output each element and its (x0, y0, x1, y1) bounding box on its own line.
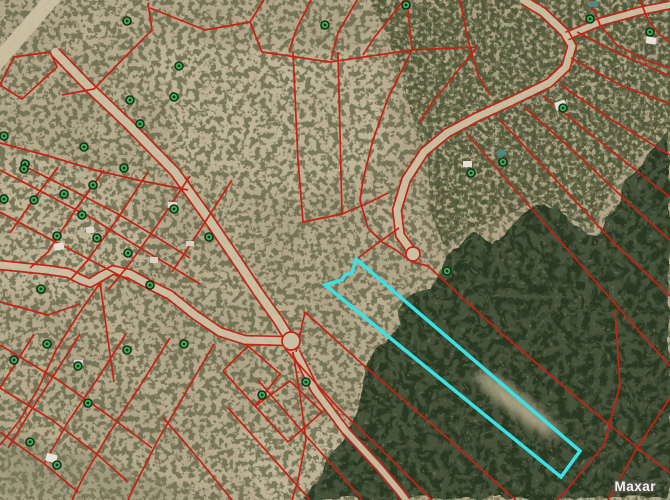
parcel-marker[interactable] (0, 195, 8, 203)
parcel-marker[interactable] (74, 362, 82, 370)
parcel-marker[interactable] (80, 143, 88, 151)
marker-dot-icon (123, 167, 126, 170)
parcel-marker[interactable] (10, 356, 18, 364)
parcel-marker[interactable] (205, 233, 213, 241)
marker-dot-icon (562, 107, 565, 110)
marker-dot-icon (173, 208, 176, 211)
parcel-marker[interactable] (170, 205, 178, 213)
building (186, 241, 194, 246)
parcel-marker[interactable] (43, 340, 51, 348)
parcel-marker[interactable] (78, 211, 86, 219)
marker-dot-icon (149, 284, 152, 287)
marker-dot-icon (305, 381, 308, 384)
marker-dot-icon (56, 464, 59, 467)
marker-dot-icon (127, 252, 130, 255)
parcel-marker[interactable] (120, 164, 128, 172)
parcel-marker[interactable] (321, 21, 329, 29)
parcel-marker[interactable] (84, 399, 92, 407)
marker-dot-icon (649, 31, 652, 34)
satellite-map-view[interactable]: Maxar (0, 0, 670, 500)
building (86, 227, 94, 233)
marker-dot-icon (126, 20, 129, 23)
parcel-marker[interactable] (26, 438, 34, 446)
parcel-marker[interactable] (60, 190, 68, 198)
marker-dot-icon (261, 394, 264, 397)
parcel-marker[interactable] (20, 165, 28, 173)
parcel-marker[interactable] (136, 120, 144, 128)
marker-dot-icon (83, 146, 86, 149)
parcel-marker[interactable] (402, 1, 410, 9)
marker-dot-icon (173, 96, 176, 99)
marker-dot-icon (87, 402, 90, 405)
cul-de-sac (282, 332, 300, 350)
map-canvas[interactable]: Maxar (0, 0, 670, 500)
parcel-marker[interactable] (170, 93, 178, 101)
parcel-marker[interactable] (53, 232, 61, 240)
parcel-marker[interactable] (646, 28, 654, 36)
marker-dot-icon (470, 172, 473, 175)
marker-dot-icon (92, 184, 95, 187)
parcel-marker[interactable] (180, 340, 188, 348)
marker-dot-icon (23, 168, 26, 171)
marker-dot-icon (502, 161, 505, 164)
marker-dot-icon (96, 237, 99, 240)
parcel-marker[interactable] (123, 17, 131, 25)
marker-dot-icon (40, 288, 43, 291)
marker-dot-icon (178, 65, 181, 68)
parcel-marker[interactable] (175, 62, 183, 70)
parcel-marker[interactable] (126, 96, 134, 104)
parcel-marker[interactable] (53, 461, 61, 469)
parcel-marker[interactable] (146, 281, 154, 289)
marker-dot-icon (77, 365, 80, 368)
parcel-marker[interactable] (0, 132, 8, 140)
marker-dot-icon (405, 4, 408, 7)
parcel-marker[interactable] (93, 234, 101, 242)
marker-dot-icon (324, 24, 327, 27)
marker-dot-icon (126, 349, 129, 352)
parcel-marker[interactable] (30, 196, 38, 204)
marker-dot-icon (29, 441, 32, 444)
marker-dot-icon (46, 343, 49, 346)
parcel-marker[interactable] (499, 158, 507, 166)
parcel-marker[interactable] (559, 104, 567, 112)
marker-dot-icon (208, 236, 211, 239)
building (463, 161, 472, 167)
imagery-attribution: Maxar (614, 479, 656, 494)
building (150, 257, 158, 263)
marker-dot-icon (446, 270, 449, 273)
parcel-marker[interactable] (37, 285, 45, 293)
parcel-marker[interactable] (302, 378, 310, 386)
parcel-marker[interactable] (443, 267, 451, 275)
parcel-marker[interactable] (124, 249, 132, 257)
parcel-marker[interactable] (258, 391, 266, 399)
parcel-marker[interactable] (586, 15, 594, 23)
marker-dot-icon (183, 343, 186, 346)
building (589, 1, 598, 7)
parcel-marker[interactable] (467, 169, 475, 177)
marker-dot-icon (589, 18, 592, 21)
marker-dot-icon (3, 135, 6, 138)
marker-dot-icon (56, 235, 59, 238)
marker-dot-icon (81, 214, 84, 217)
marker-dot-icon (139, 123, 142, 126)
parcel-marker[interactable] (123, 346, 131, 354)
cul-de-sac (406, 247, 420, 261)
parcel-marker[interactable] (89, 181, 97, 189)
marker-dot-icon (63, 193, 66, 196)
marker-dot-icon (33, 199, 36, 202)
marker-dot-icon (129, 99, 132, 102)
marker-dot-icon (3, 198, 6, 201)
marker-dot-icon (13, 359, 16, 362)
terrain-imagery (0, 0, 670, 500)
